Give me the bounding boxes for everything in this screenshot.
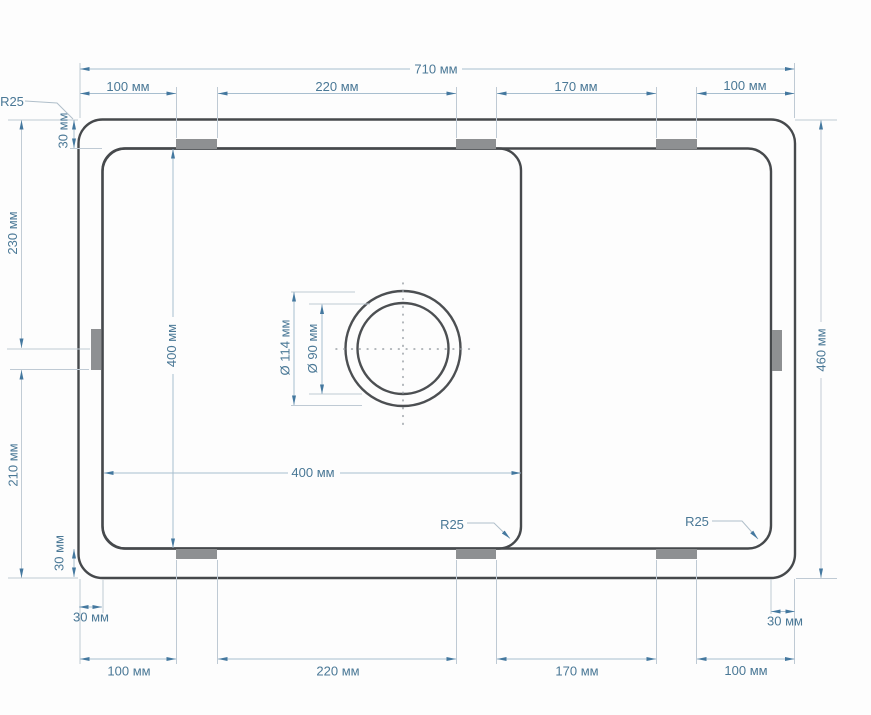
svg-text:230 мм: 230 мм	[5, 211, 20, 254]
svg-text:100 мм: 100 мм	[724, 663, 767, 678]
svg-text:210 мм: 210 мм	[6, 443, 21, 486]
svg-text:170 мм: 170 мм	[555, 664, 598, 679]
svg-text:100 мм: 100 мм	[107, 664, 150, 679]
svg-text:30 мм: 30 мм	[73, 610, 109, 625]
svg-text:R25: R25	[685, 514, 709, 529]
svg-text:710 мм: 710 мм	[414, 62, 457, 77]
svg-text:400 мм: 400 мм	[291, 465, 334, 480]
svg-text:100 мм: 100 мм	[106, 79, 149, 94]
svg-text:100 мм: 100 мм	[723, 78, 766, 93]
svg-text:R25: R25	[440, 517, 464, 532]
svg-text:Ø 114 мм: Ø 114 мм	[278, 319, 293, 375]
svg-text:170 мм: 170 мм	[554, 79, 597, 94]
svg-text:220 мм: 220 мм	[316, 664, 359, 679]
svg-text:400 мм: 400 мм	[164, 324, 179, 367]
svg-text:R25: R25	[0, 94, 24, 109]
svg-text:460 мм: 460 мм	[814, 328, 829, 371]
svg-text:30 мм: 30 мм	[52, 535, 67, 571]
svg-text:30 мм: 30 мм	[56, 112, 71, 148]
svg-text:220 мм: 220 мм	[315, 79, 358, 94]
svg-text:Ø 90 мм: Ø 90 мм	[305, 324, 320, 374]
svg-text:30 мм: 30 мм	[767, 614, 803, 629]
